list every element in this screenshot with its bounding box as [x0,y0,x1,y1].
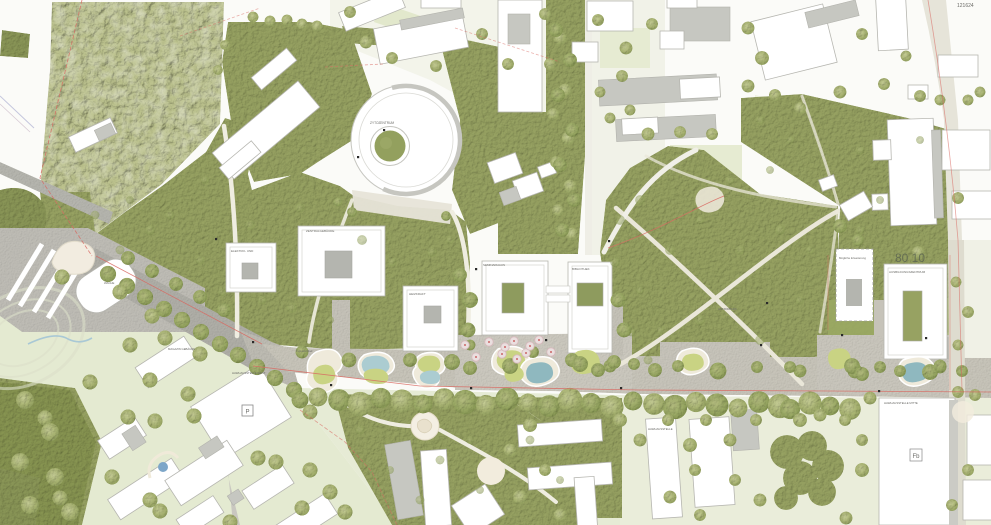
svg-text:HAWHAUSSTELLE: HAWHAUSSTELLE [648,427,673,431]
svg-text:HEIZKRAFT: HEIZKRAFT [409,292,426,296]
svg-text:Fuß und Rad: Fuß und Rad [296,349,313,353]
svg-text:P: P [245,410,249,416]
svg-text:80 10: 80 10 [895,251,925,265]
svg-text:HAWHAUSSTELLE MITTE: HAWHAUSSTELLE MITTE [884,401,918,405]
svg-text:HAWHAUSSTELLE WEST: HAWHAUSSTELLE WEST [232,371,266,375]
svg-text:ASTRIDPARK: ASTRIDPARK [718,307,737,311]
svg-text:Fb: Fb [912,454,920,460]
svg-text:ZYTOZENTRUM: ZYTOZENTRUM [370,121,394,125]
svg-text:SEMINARHAUS: SEMINARHAUS [483,263,505,267]
svg-text:MAGAZIN GEBÄUDE: MAGAZIN GEBÄUDE [168,347,195,351]
svg-text:BIBLIOTHEK: BIBLIOTHEK [572,267,590,271]
svg-text:121624: 121624 [957,3,974,9]
svg-text:AUSBILDUNGSZENTRUM: AUSBILDUNGSZENTRUM [889,270,926,274]
svg-text:WACHE: WACHE [104,281,114,285]
svg-text:ZENTRALGEBÄUDE: ZENTRALGEBÄUDE [306,229,334,233]
svg-text:Mögliche Erweiterung: Mögliche Erweiterung [839,256,866,260]
svg-text:ELEKTRO- UND: ELEKTRO- UND [231,249,254,253]
